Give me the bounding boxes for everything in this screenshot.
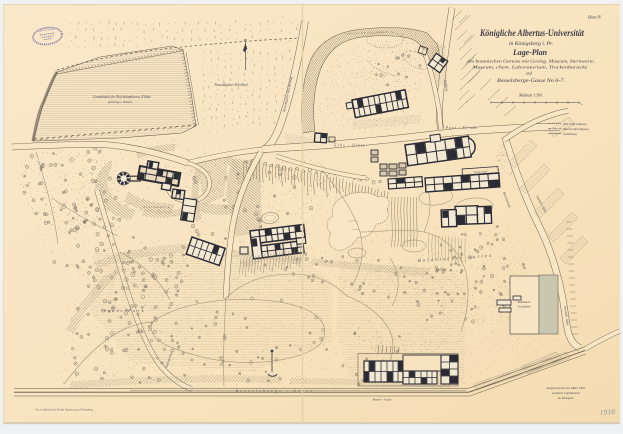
svg-text:Bessels - Gasse: Bessels - Gasse: [373, 398, 392, 402]
svg-text:Gehölzung: Gehölzung: [563, 132, 577, 136]
svg-text:Stadt Park: Stadt Park: [104, 308, 146, 313]
svg-text:Blatt IV.: Blatt IV.: [588, 15, 602, 20]
svg-text:Mauerumfriedigung: Mauerumfriedigung: [562, 127, 589, 131]
svg-text:zu Königsb.: zu Königsb.: [557, 396, 574, 400]
svg-text:Grundstück der Reichsbankverw.: Grundstück der Reichsbankverw. Filiale: [93, 95, 151, 99]
svg-text:Aufgenommen im März 1891: Aufgenommen im März 1891: [545, 386, 586, 390]
svg-text:Grundstück: Grundstück: [517, 306, 531, 309]
svg-text:Sternwarte: Sternwarte: [143, 205, 170, 209]
svg-text:Paul - Straße: Paul - Straße: [445, 126, 478, 130]
svg-text:Lage-Plan: Lage-Plan: [512, 48, 548, 57]
svg-text:Besselsberge-Gasse No 6-7.: Besselsberge-Gasse No 6-7.: [497, 78, 565, 84]
svg-text:Neuroßgärter Kirchhof: Neuroßgärter Kirchhof: [213, 83, 248, 87]
svg-text:in Königsberg i. Pr.: in Königsberg i. Pr.: [509, 42, 553, 47]
svg-text:Alte Umfriedigung: Alte Umfriedigung: [562, 122, 587, 126]
svg-text:Ausborn Landmesser: Ausborn Landmesser: [551, 391, 581, 395]
svg-text:Gez. im Bureau der Königl. Reg: Gez. im Bureau der Königl. Regierung zu …: [35, 409, 94, 412]
svg-text:Maßstab 1:500.: Maßstab 1:500.: [518, 94, 543, 98]
svg-text:Königliche Albertus-Universitä: Königliche Albertus-Universität: [479, 29, 584, 39]
svg-text:Waldhäuser: Waldhäuser: [517, 301, 531, 304]
svg-text:Erbs - Platz: Erbs - Platz: [333, 144, 366, 148]
svg-text:gehörig u. bebaut: gehörig u. bebaut: [108, 100, 133, 104]
svg-text:und: und: [526, 72, 532, 76]
svg-text:1918: 1918: [600, 407, 616, 417]
